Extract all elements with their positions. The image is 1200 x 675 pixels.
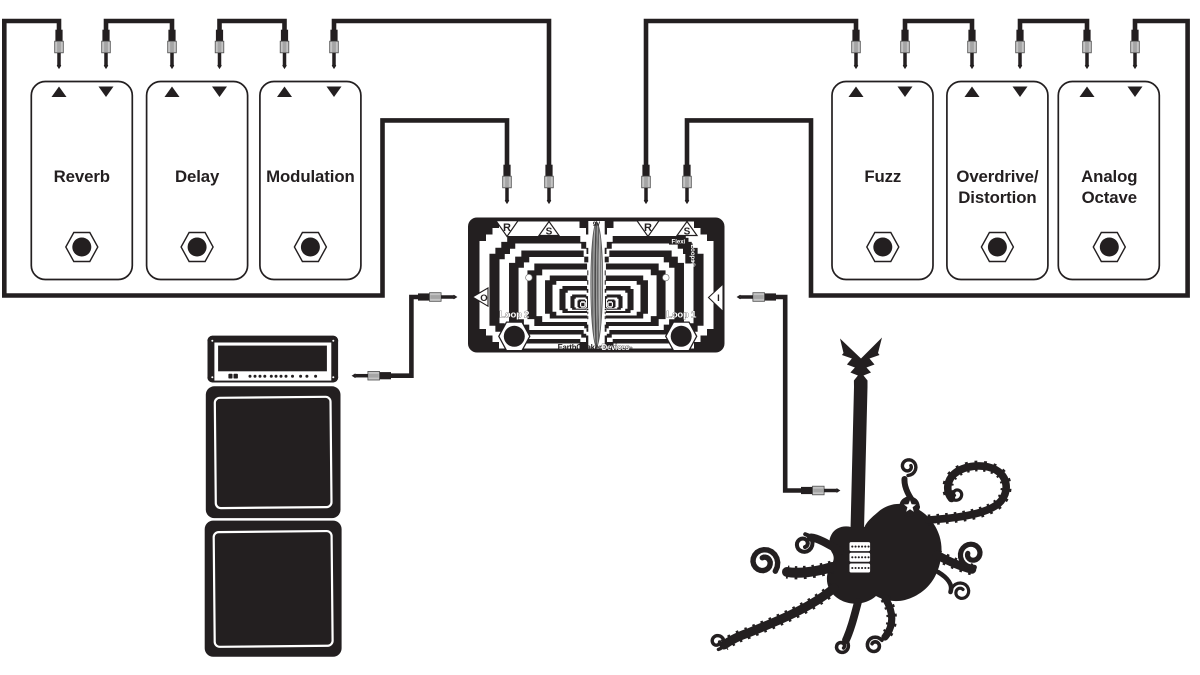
svg-text:Overdrive/: Overdrive/ — [956, 167, 1038, 186]
svg-text:Fuzz: Fuzz — [864, 167, 901, 186]
svg-text:S: S — [684, 227, 691, 238]
svg-text:EarthQuakerDevices®: EarthQuakerDevices® — [558, 343, 634, 352]
svg-text:Loop 1: Loop 1 — [666, 310, 697, 321]
svg-text:Modulation: Modulation — [266, 167, 354, 186]
svg-text:R: R — [644, 222, 652, 234]
svg-text:Distortion: Distortion — [958, 188, 1036, 207]
svg-text:Flexi: Flexi — [672, 240, 686, 246]
svg-text:Analog: Analog — [1081, 167, 1137, 186]
svg-text:9V: 9V — [593, 222, 600, 228]
svg-text:S: S — [546, 227, 553, 238]
svg-text:Octave: Octave — [1082, 188, 1137, 207]
svg-text:Loop 2: Loop 2 — [499, 310, 529, 321]
svg-text:I: I — [717, 293, 720, 304]
svg-text:O: O — [480, 293, 487, 304]
svg-text:Delay: Delay — [175, 167, 220, 186]
svg-text:Loops®: Loops® — [689, 245, 696, 268]
svg-text:Reverb: Reverb — [54, 167, 110, 186]
svg-text:R: R — [503, 222, 511, 234]
